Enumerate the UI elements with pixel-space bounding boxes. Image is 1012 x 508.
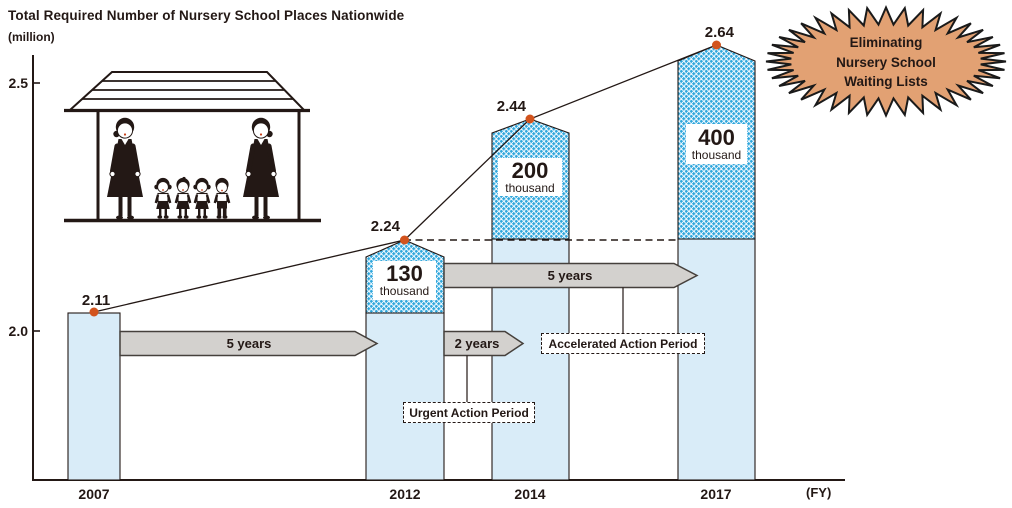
accelerated-action-period-box: Accelerated Action Period xyxy=(541,333,705,354)
nursery-school-illustration xyxy=(60,72,321,221)
increase-unit: thousand xyxy=(692,149,741,162)
teacher-figure-left xyxy=(107,118,143,220)
dot-2017 xyxy=(712,41,721,50)
badge-line-3: Waiting Lists xyxy=(786,72,986,92)
child-figure-3 xyxy=(193,178,210,219)
increase-unit: thousand xyxy=(505,182,554,195)
increase-box-2014: 200 thousand xyxy=(498,158,562,196)
x-tick-label-2007: 2007 xyxy=(64,486,124,502)
urgent-action-period-box: Urgent Action Period xyxy=(403,402,535,423)
increase-box-2017: 400 thousand xyxy=(686,124,747,164)
child-figure-1 xyxy=(154,178,171,219)
y-tick-label-2-0: 2.0 xyxy=(0,323,28,339)
increase-box-2012: 130 thousand xyxy=(373,261,436,300)
roof xyxy=(70,72,304,110)
increase-unit: thousand xyxy=(380,285,429,298)
x-tick-label-2017: 2017 xyxy=(686,486,746,502)
nursery-places-chart: Total Required Number of Nursery School … xyxy=(0,0,1012,508)
badge-text: Eliminating Nursery School Waiting Lists xyxy=(786,33,986,92)
bar-2007 xyxy=(68,313,120,480)
badge-line-2: Nursery School xyxy=(786,53,986,73)
x-tick-label-2014: 2014 xyxy=(500,486,560,502)
dot-2012 xyxy=(400,236,409,245)
chart-title: Total Required Number of Nursery School … xyxy=(8,8,404,23)
dot-2014 xyxy=(526,115,535,124)
increase-amount: 130 xyxy=(386,263,423,285)
child-figure-4 xyxy=(215,178,229,219)
x-axis-unit-label: (FY) xyxy=(806,485,831,500)
value-label-2007: 2.11 xyxy=(74,292,118,309)
arrow-label-5-years-2: 5 years xyxy=(510,268,630,283)
increase-amount: 200 xyxy=(512,160,549,182)
y-tick-label-2-5: 2.5 xyxy=(0,75,28,91)
x-tick-label-2012: 2012 xyxy=(375,486,435,502)
teacher-figure-right xyxy=(243,118,279,220)
arrow-label-2-years: 2 years xyxy=(417,336,537,351)
increase-amount: 400 xyxy=(698,127,735,149)
badge-line-1: Eliminating xyxy=(786,33,986,53)
arrow-label-5-years-1: 5 years xyxy=(189,336,309,351)
child-figure-2 xyxy=(176,177,190,219)
value-label-2017: 2.64 xyxy=(690,24,734,41)
value-label-2012: 2.24 xyxy=(356,218,400,235)
y-axis-unit-label: (million) xyxy=(8,30,55,44)
value-label-2014: 2.44 xyxy=(482,98,526,115)
